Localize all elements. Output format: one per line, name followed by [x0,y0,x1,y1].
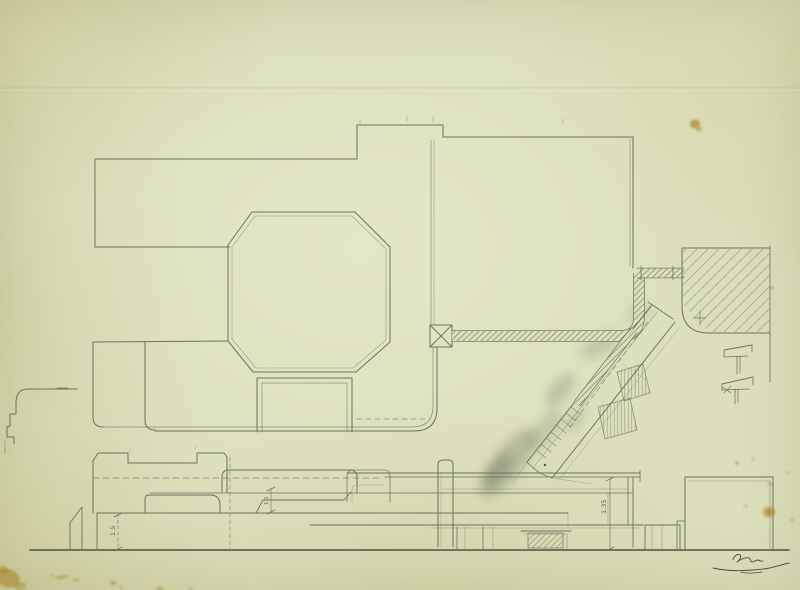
architectural-drawing: 1.51.11.35 [0,0,800,590]
elevation-drawing [30,446,789,551]
paper-stain [119,586,123,589]
dimension-labels: 1.51.11.35 [109,496,608,536]
paper-stain [156,587,164,590]
dimension-label: 1.1 [264,496,270,505]
paper-stain [766,509,772,514]
paper-stains [0,120,794,590]
stair-ramp-detail [513,302,679,484]
paper-stain [696,127,702,132]
dimension-label: 1.35 [600,500,608,514]
paper-stain [72,578,80,582]
paper-stain [786,471,790,474]
paper-stain [110,581,116,586]
paper-stain [768,482,773,486]
paper-stain [790,518,795,522]
architect-signature [713,554,789,573]
graphite-smudge [541,369,580,412]
screenshot-root: 1.51.11.35 Architectural pencil sketch o… [0,0,800,590]
paper-stain [14,582,26,590]
paper-stain [751,458,754,461]
paper-stain [735,461,739,465]
paper-stain [744,504,748,507]
paper-stain [770,286,774,290]
paper-stain [49,574,54,577]
paper-stain [55,574,69,580]
dimension-label: 1.5 [109,526,117,536]
pencil-linework: 1.51.11.35 [5,116,789,573]
